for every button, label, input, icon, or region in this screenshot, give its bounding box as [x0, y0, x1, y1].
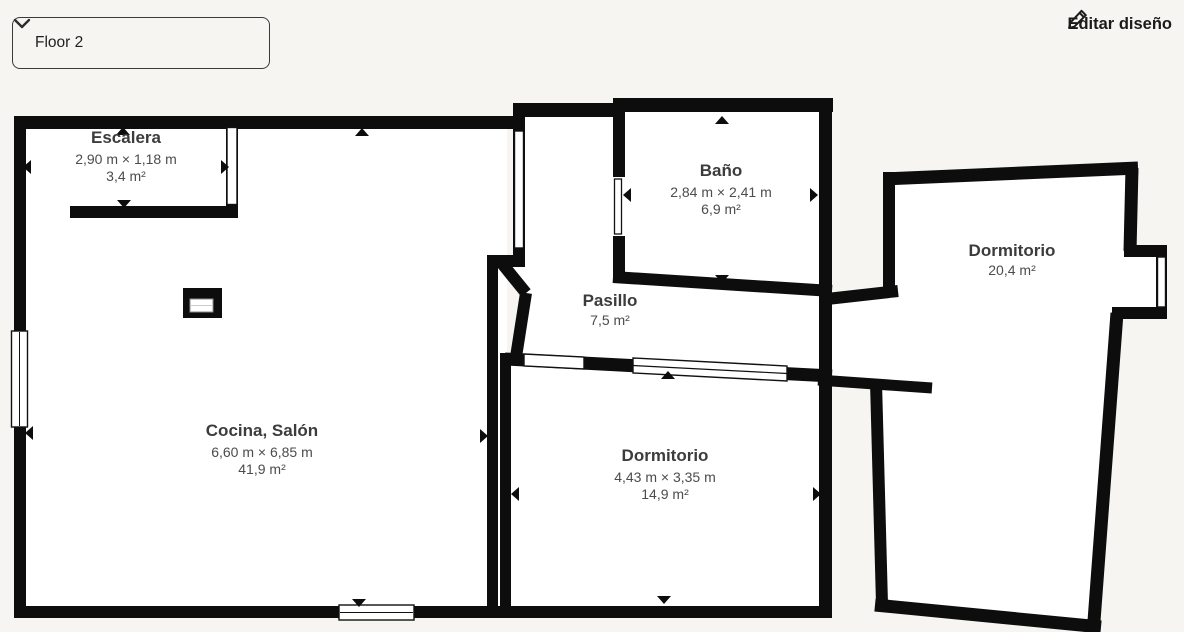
floor-selector-dropdown[interactable]: Floor 2	[12, 17, 270, 69]
wall-dormitorio-left	[500, 353, 511, 618]
wall-cocina-right	[487, 255, 498, 618]
wall-east-spine	[819, 98, 832, 618]
floorplan-canvas	[0, 0, 1184, 632]
pillar	[183, 288, 222, 318]
wall-top-left-building	[14, 116, 518, 129]
room-fill-bano	[618, 104, 828, 292]
wall-dormg-left-upper	[883, 172, 895, 297]
wall-bottom-exterior	[14, 606, 832, 618]
door-escalera	[227, 128, 237, 205]
window-dormitorio-grande	[1158, 257, 1166, 307]
door-bano	[615, 179, 622, 234]
room-fill-cocina-salon	[20, 121, 507, 612]
wall-pasillo-top	[513, 103, 620, 117]
chevron-down-icon	[13, 18, 31, 29]
wall-dormg-left-lower	[876, 382, 882, 604]
wall-escalera-bottom	[70, 206, 238, 218]
floor-selector-value: Floor 2	[35, 34, 83, 52]
edit-layout-button[interactable]: Editar diseño	[1067, 8, 1172, 40]
room-fill-dormitorio	[505, 358, 826, 612]
window-pasillo	[524, 354, 584, 369]
window-cocina-bottom	[339, 605, 414, 620]
door-pasillo	[515, 131, 524, 248]
pencil-icon	[1067, 8, 1089, 30]
wall-bano-top	[613, 98, 833, 112]
wall-dormg-right-upper	[1130, 168, 1132, 251]
floorplan-viewer: Escalera 2,90 m × 1,18 m 3,4 m² Baño 2,8…	[0, 0, 1184, 632]
window-cocina-left	[12, 331, 28, 427]
